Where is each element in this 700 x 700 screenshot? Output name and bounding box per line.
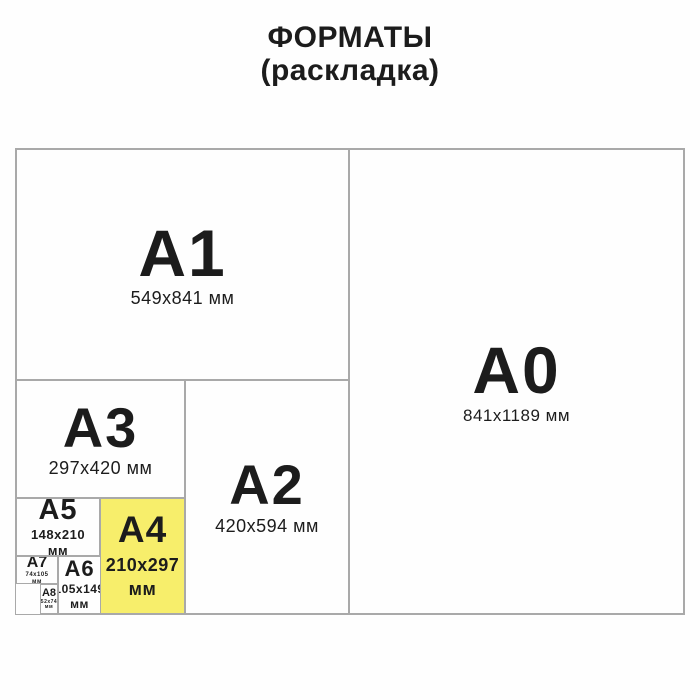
paper-formats-diagram: A1 549x841 мм A0 841x1189 мм A3 297x420 … bbox=[15, 148, 685, 615]
format-box-a5: A5 148x210 мм bbox=[16, 498, 100, 556]
format-a2-label: A2 bbox=[229, 457, 305, 513]
format-a3-label: A3 bbox=[63, 400, 139, 456]
format-a4-size-line-1: 210x297 bbox=[106, 553, 180, 577]
format-box-a8: A8 52x74 мм bbox=[40, 584, 58, 614]
format-a2-size: 420x594 мм bbox=[215, 517, 319, 537]
format-a1-label: A1 bbox=[138, 220, 226, 286]
format-a7-label: A7 bbox=[27, 556, 47, 571]
format-a1-size: 549x841 мм bbox=[131, 289, 235, 309]
title-line-1: ФОРМАТЫ bbox=[0, 21, 700, 54]
format-a5-size: 148x210 мм bbox=[31, 527, 85, 556]
format-box-a4: A4 210x297 мм bbox=[100, 498, 185, 614]
page-title: ФОРМАТЫ (раскладка) bbox=[0, 21, 700, 87]
format-a4-label: A4 bbox=[118, 511, 167, 548]
format-a5-size-line-2: мм bbox=[31, 543, 85, 557]
format-box-a7: A7 74x105 мм bbox=[16, 556, 58, 584]
format-a3-size: 297x420 мм bbox=[49, 459, 153, 479]
format-a6-size-line-1: 105x149 bbox=[58, 582, 101, 597]
format-box-a3: A3 297x420 мм bbox=[16, 380, 185, 498]
format-a7-size: 74x105 мм bbox=[25, 572, 48, 584]
title-line-2: (раскладка) bbox=[0, 54, 700, 87]
format-box-a2: A2 420x594 мм bbox=[185, 380, 349, 614]
format-a0-label: A0 bbox=[472, 337, 560, 403]
format-a6-label: A6 bbox=[64, 558, 94, 580]
format-a8-label: A8 bbox=[42, 588, 56, 599]
format-box-a0: A0 841x1189 мм bbox=[349, 149, 684, 614]
format-box-a6: A6 105x149 мм bbox=[58, 556, 101, 614]
format-a0-size: 841x1189 мм bbox=[463, 407, 570, 426]
format-box-a1: A1 549x841 мм bbox=[16, 149, 349, 380]
format-a6-size-line-2: мм bbox=[58, 597, 101, 612]
format-a8-size: 52x74 мм bbox=[41, 600, 57, 611]
format-a4-size: 210x297 мм bbox=[106, 553, 180, 602]
format-a7-size-line-1: 74x105 bbox=[25, 572, 48, 579]
format-a4-size-line-2: мм bbox=[106, 577, 180, 601]
format-a5-label: A5 bbox=[38, 498, 77, 525]
format-a8-size-line-2: мм bbox=[41, 605, 57, 611]
format-a6-size: 105x149 мм bbox=[58, 582, 101, 612]
page: ФОРМАТЫ (раскладка) A1 549x841 мм A0 841… bbox=[0, 0, 700, 700]
format-a5-size-line-1: 148x210 bbox=[31, 527, 85, 543]
